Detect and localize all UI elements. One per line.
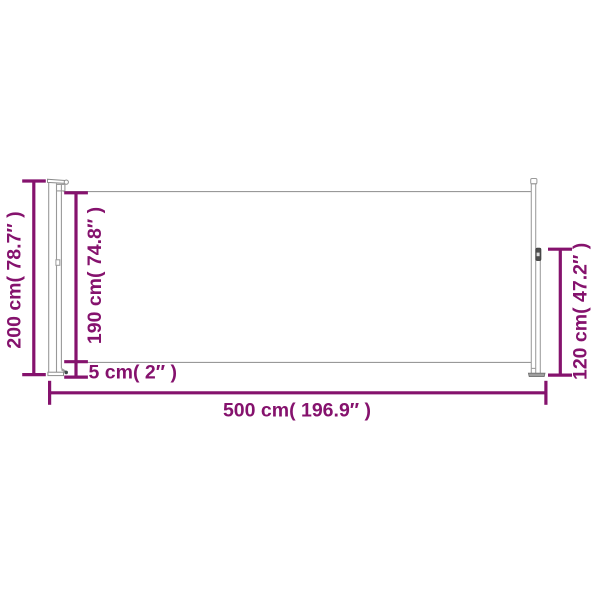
svg-text:500 cm( 196.9″ ): 500 cm( 196.9″ ) (223, 400, 371, 422)
svg-text:200 cm( 78.7″ ): 200 cm( 78.7″ ) (4, 211, 26, 348)
svg-text:190 cm( 74.8″ ): 190 cm( 74.8″ ) (84, 207, 106, 344)
svg-text:120 cm( 47.2″ ): 120 cm( 47.2″ ) (570, 243, 592, 380)
svg-text:5 cm( 2″ ): 5 cm( 2″ ) (89, 361, 177, 383)
